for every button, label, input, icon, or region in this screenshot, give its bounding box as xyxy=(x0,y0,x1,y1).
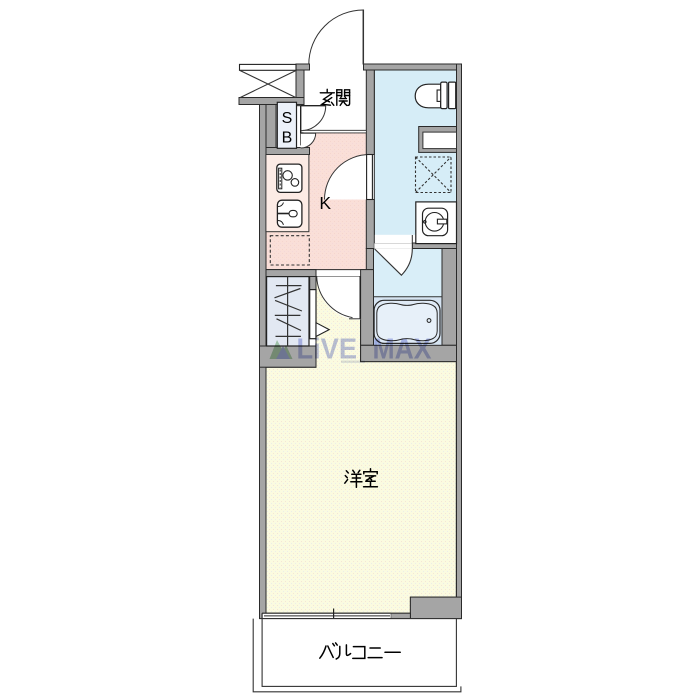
svg-text:B: B xyxy=(282,129,293,146)
svg-text:MAX: MAX xyxy=(373,334,432,366)
svg-text:K: K xyxy=(319,193,331,213)
svg-text:S: S xyxy=(282,110,293,127)
